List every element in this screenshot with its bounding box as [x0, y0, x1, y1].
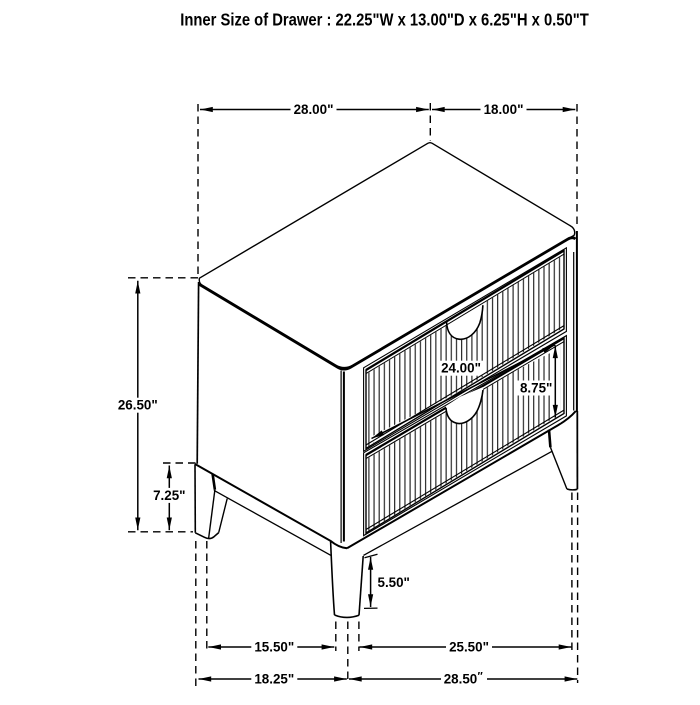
svg-text:18.00": 18.00": [484, 102, 524, 117]
svg-text:15.50": 15.50": [254, 640, 294, 655]
svg-text:18.25": 18.25": [254, 672, 294, 687]
svg-text:24.00": 24.00": [441, 361, 481, 376]
svg-text:Inner Size of Drawer : 22.25"W: Inner Size of Drawer : 22.25"W x 13.00"D…: [180, 10, 589, 29]
svg-text:5.50": 5.50": [378, 575, 410, 590]
svg-text:″: ″: [478, 671, 484, 683]
svg-text:26.50": 26.50": [118, 398, 158, 413]
svg-text:28.00": 28.00": [294, 102, 334, 117]
svg-text:7.25": 7.25": [153, 488, 185, 503]
svg-text:28.50: 28.50: [444, 672, 478, 687]
svg-text:8.75": 8.75": [520, 381, 552, 396]
svg-text:25.50": 25.50": [449, 640, 489, 655]
